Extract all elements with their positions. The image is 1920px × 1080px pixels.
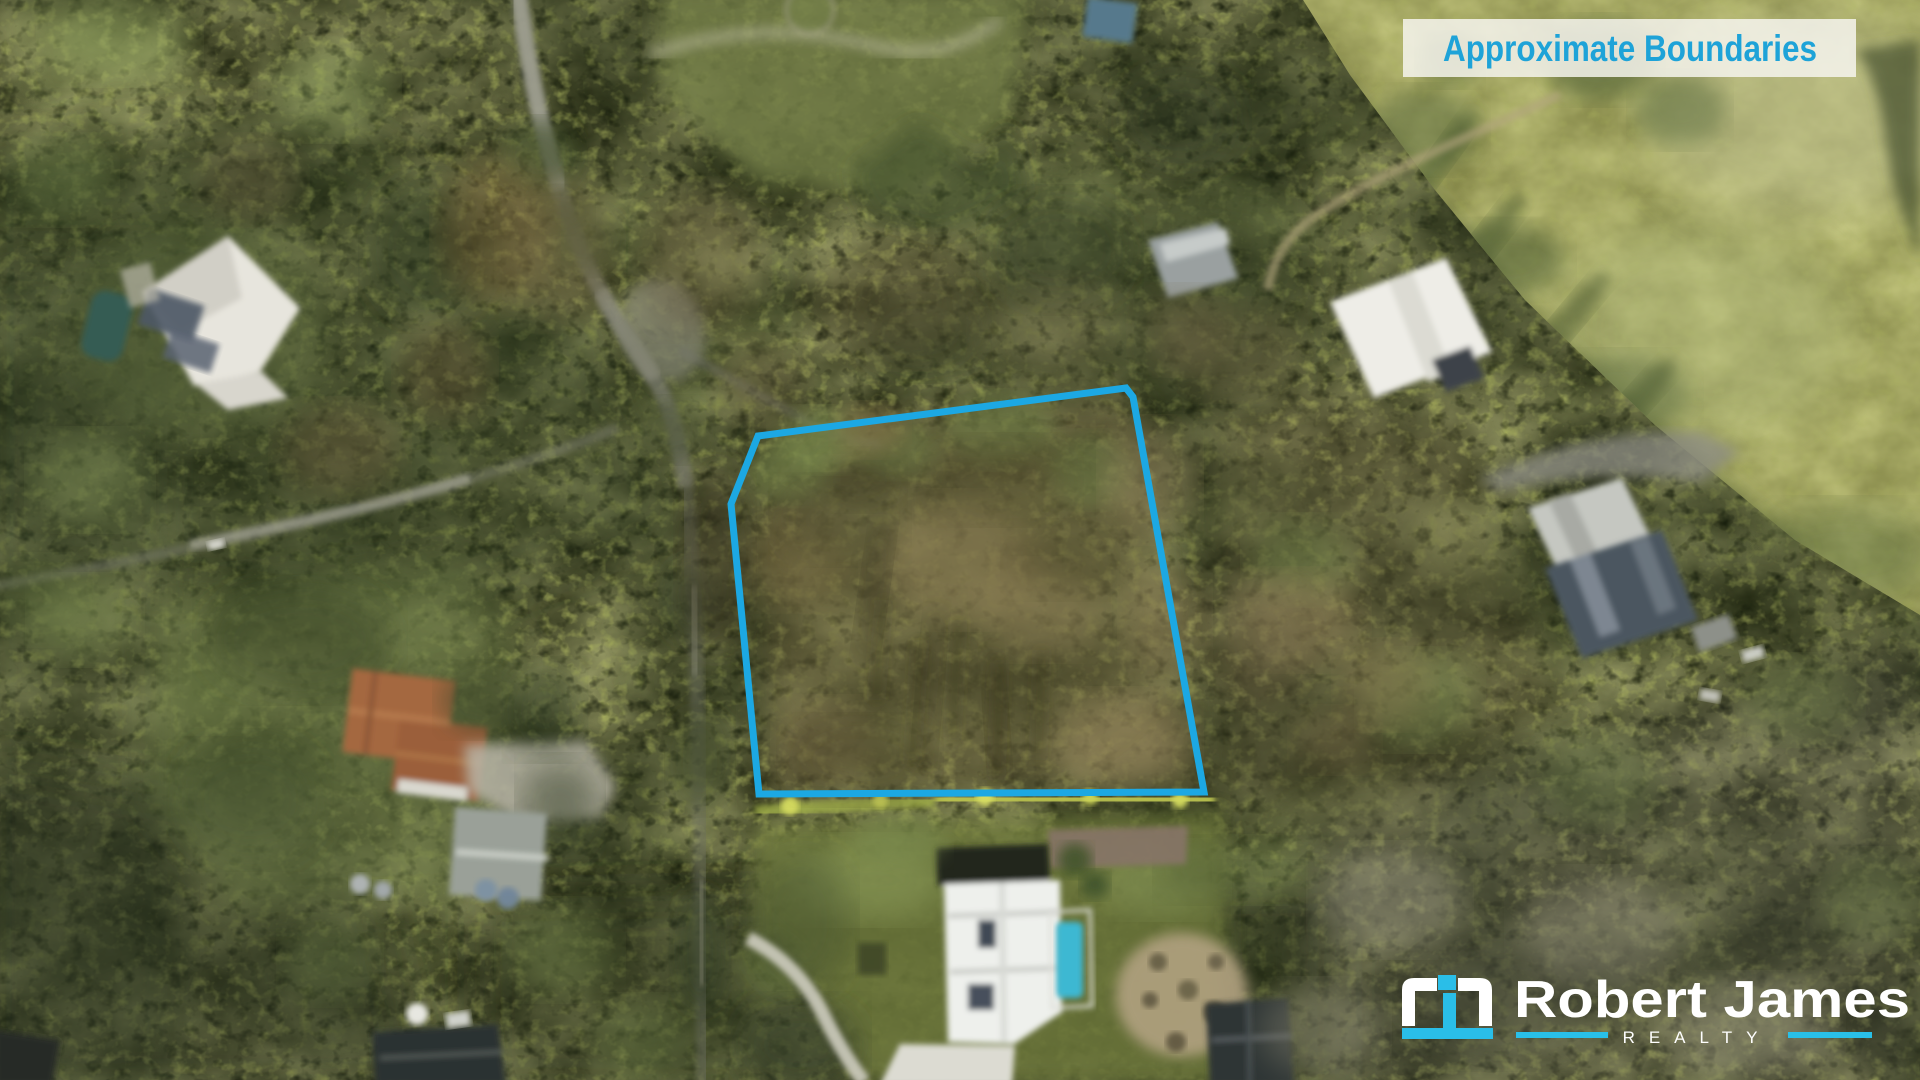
svg-text:REALTY: REALTY [1623, 1028, 1772, 1047]
svg-text:Robert James: Robert James [1514, 971, 1910, 1029]
svg-text:Approximate Boundaries: Approximate Boundaries [1443, 28, 1817, 69]
